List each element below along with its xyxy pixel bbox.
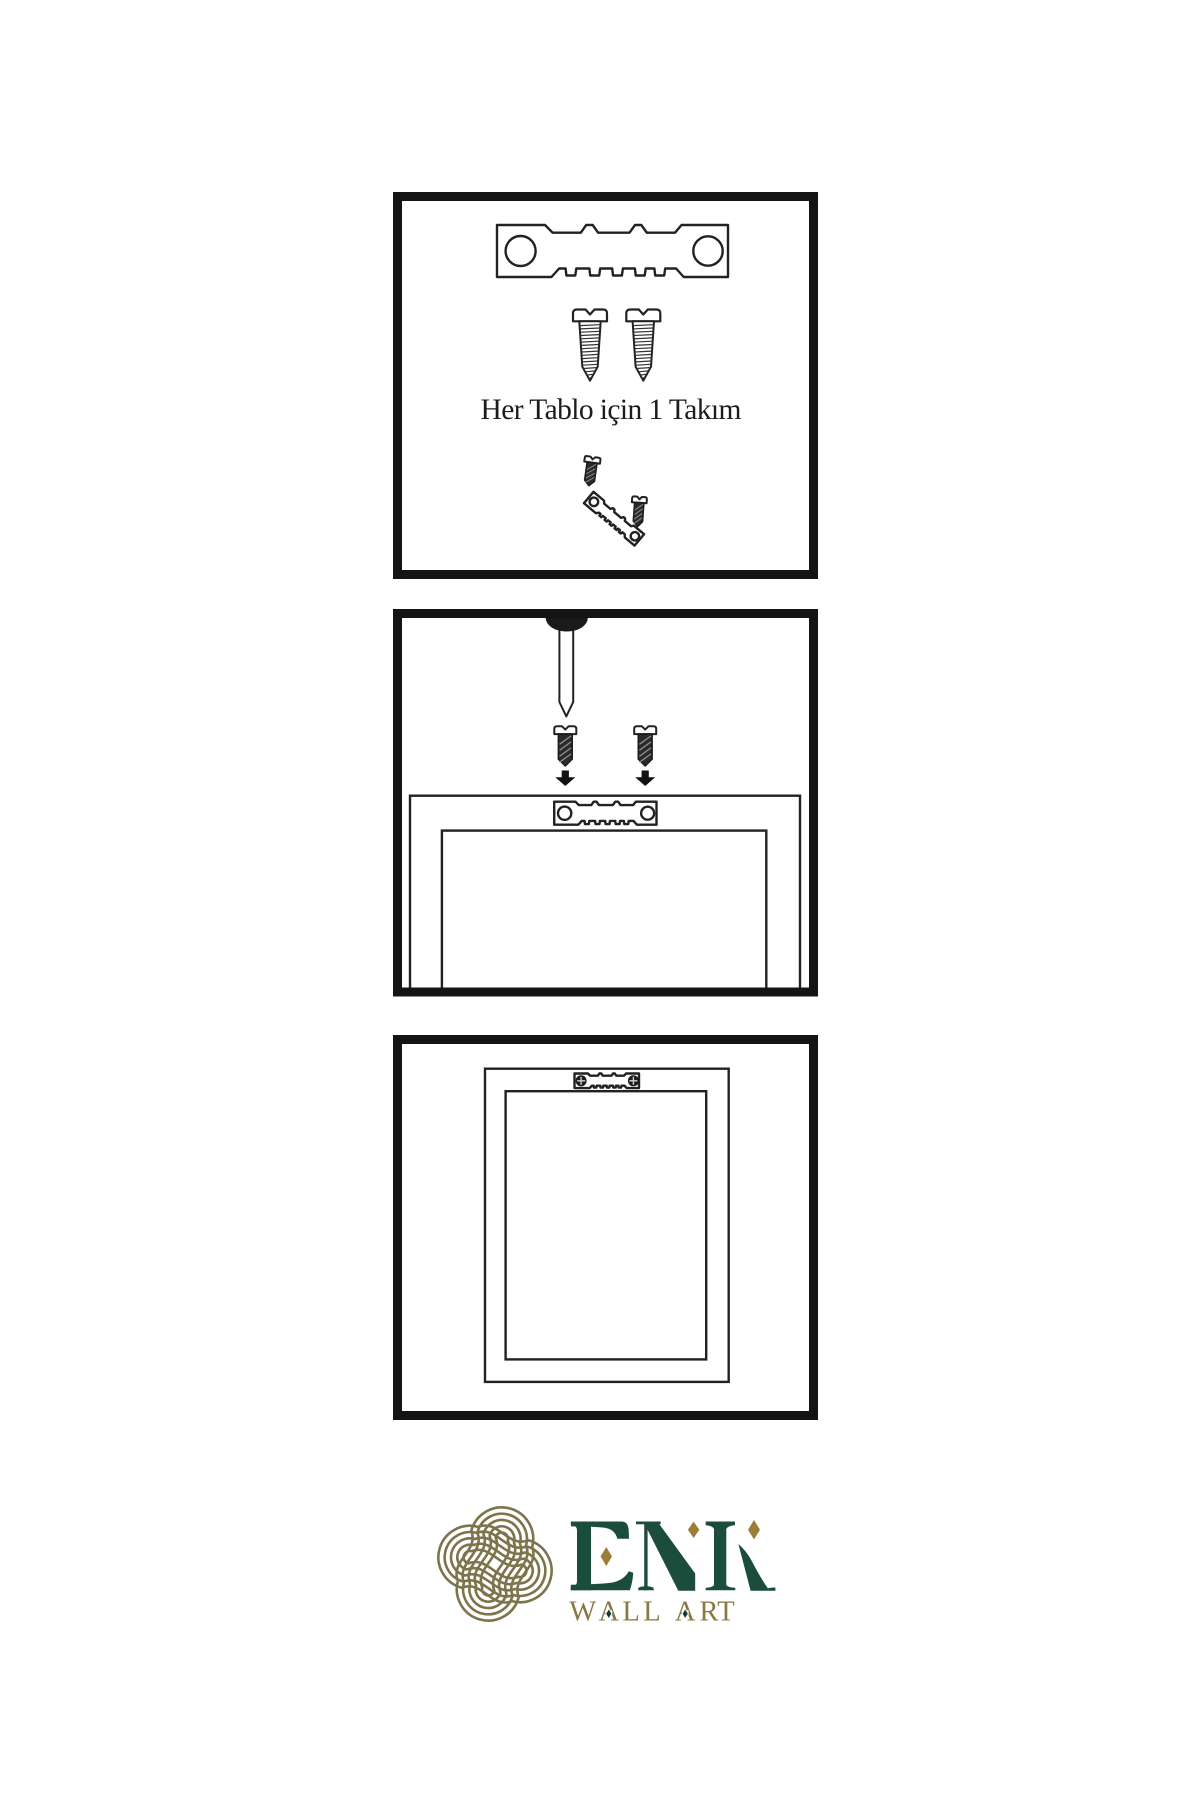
svg-text:T: T [717,1596,734,1627]
svg-text:W: W [569,1596,596,1627]
svg-text:L: L [643,1596,660,1627]
svg-text:Her Tablo için 1 Takım: Her Tablo için 1 Takım [481,394,742,426]
svg-text:L: L [622,1596,639,1627]
svg-text:R: R [700,1596,719,1627]
